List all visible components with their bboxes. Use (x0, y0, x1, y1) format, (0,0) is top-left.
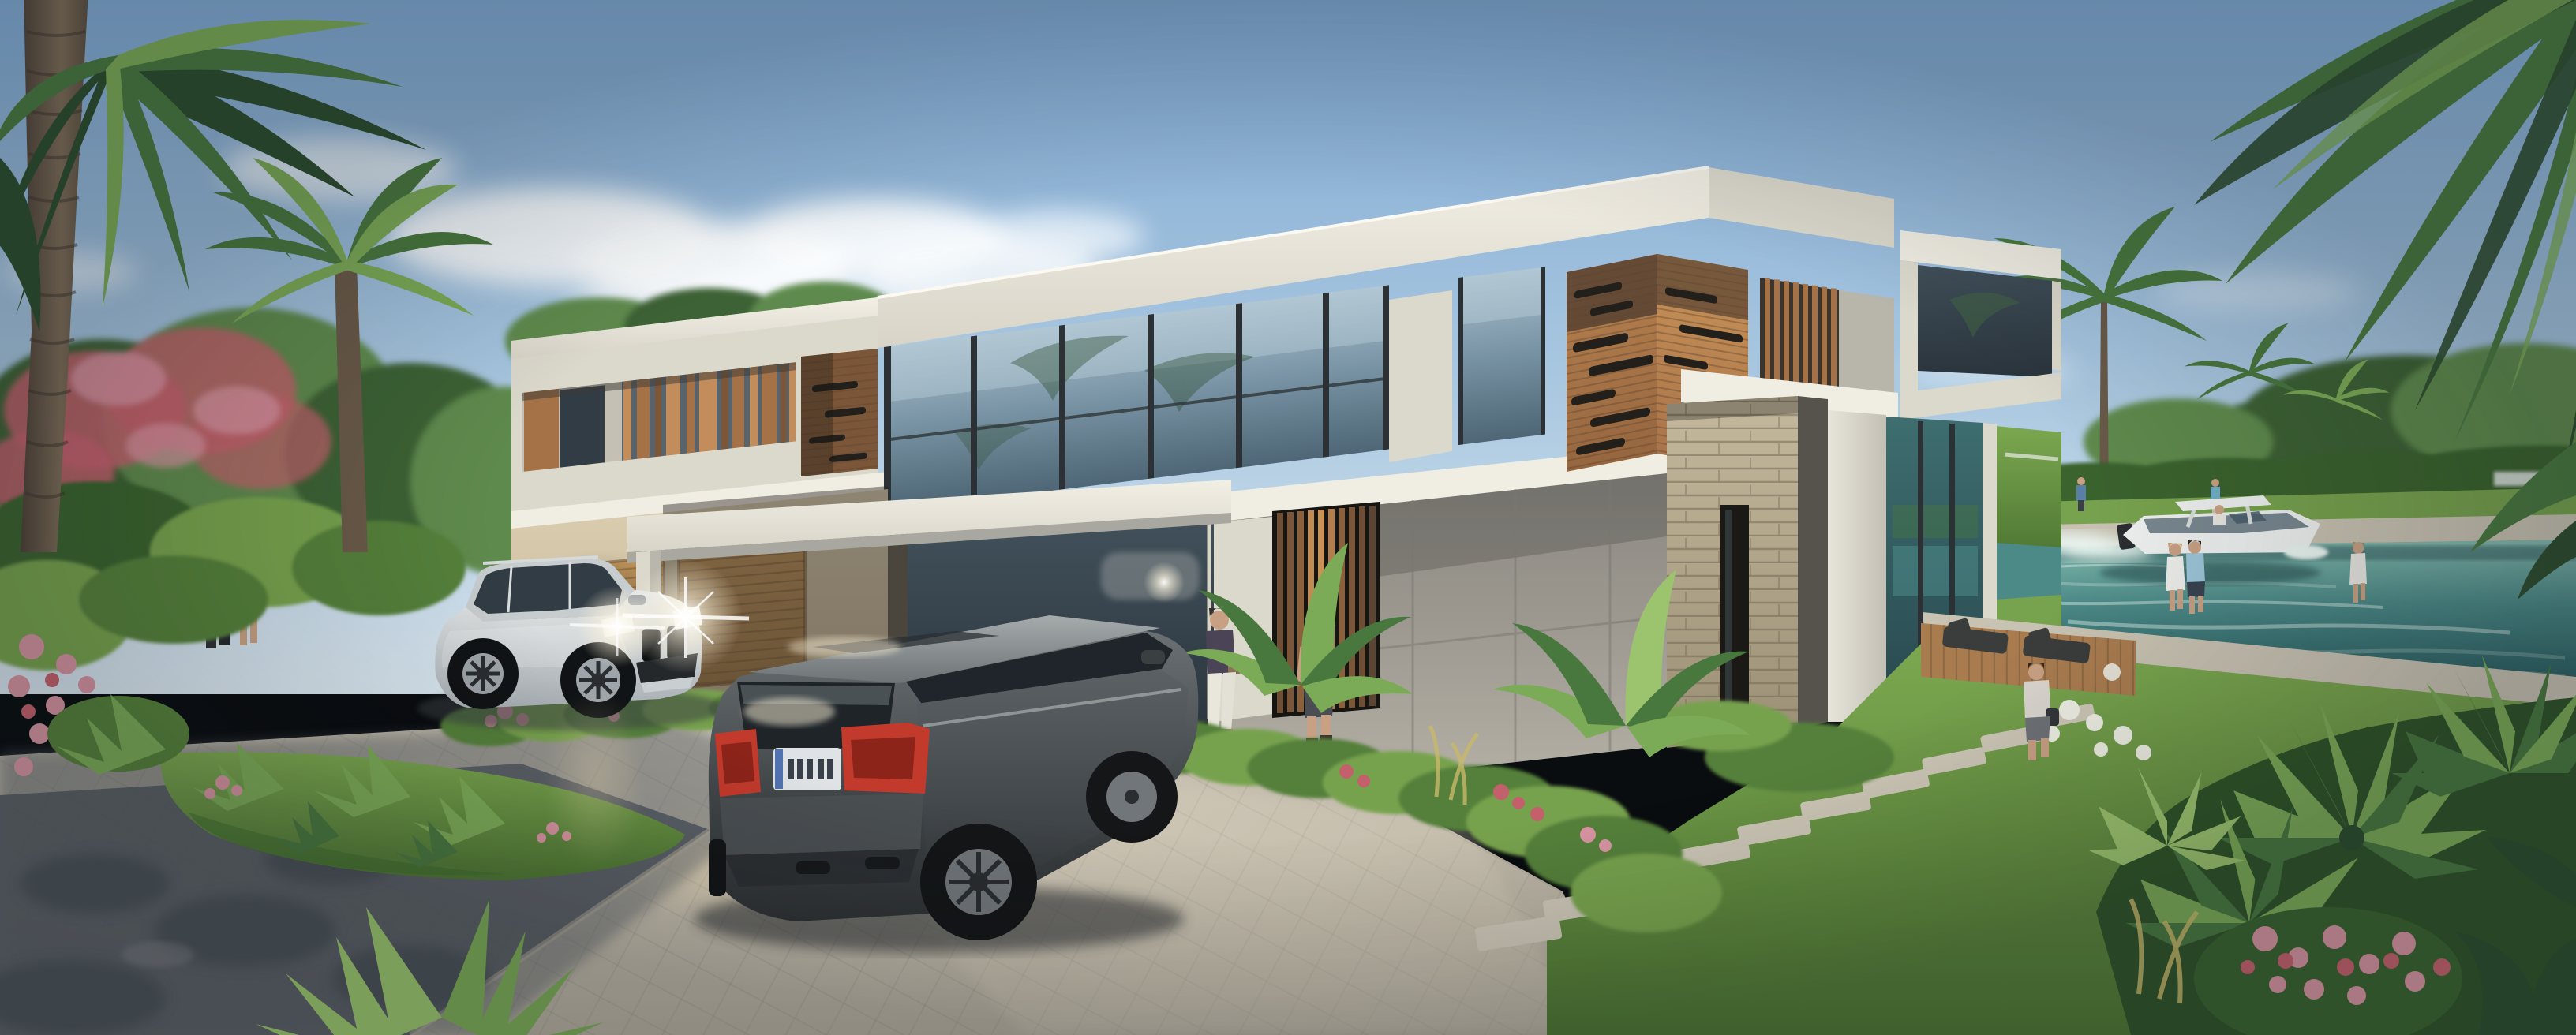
vignette (0, 0, 2576, 1035)
architectural-rendering-image: Photorealistic 3D architectural renderin… (0, 0, 2576, 1035)
villa-scene: Photorealistic 3D architectural renderin… (0, 0, 2576, 1035)
light-effects (0, 0, 2576, 1035)
